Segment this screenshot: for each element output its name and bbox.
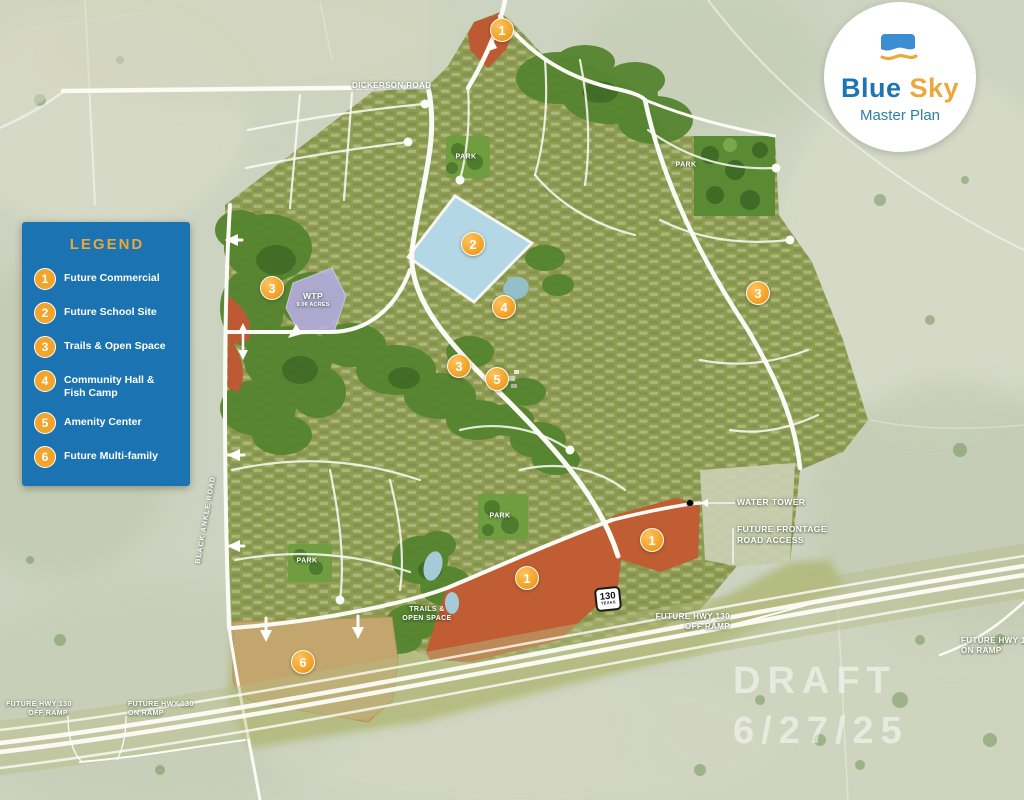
marker-2-school: 2 bbox=[461, 232, 485, 256]
marker-3-east: 3 bbox=[746, 281, 770, 305]
legend-label-1: Future Commercial bbox=[64, 268, 160, 285]
marker-3-central: 3 bbox=[447, 354, 471, 378]
hwy-off-ramp-label-right: FUTURE HWY 130 OFF RAMP bbox=[640, 612, 730, 633]
logo-brand-name: Blue Sky bbox=[841, 73, 959, 104]
legend-item-trails-open-space: 3 Trails & Open Space bbox=[34, 336, 180, 358]
blue-sky-logo: Blue Sky Master Plan bbox=[824, 2, 976, 152]
legend-num-3: 3 bbox=[34, 336, 56, 358]
marker-1-commercial-east: 1 bbox=[640, 528, 664, 552]
legend-item-future-school: 2 Future School Site bbox=[34, 302, 180, 324]
logo-brand-gold: Sky bbox=[909, 73, 959, 103]
park-label-southwest: PARK bbox=[297, 556, 318, 565]
frontage-line1: FUTURE FRONTAGE bbox=[737, 524, 827, 535]
blue-sky-flag-icon bbox=[877, 31, 923, 71]
trails-line1: TRAILS & bbox=[402, 605, 451, 614]
marker-5-amenity-center: 5 bbox=[485, 367, 509, 391]
logo-subtitle: Master Plan bbox=[860, 107, 940, 124]
wtp-label: WTP 9.06 ACRES bbox=[296, 291, 329, 309]
legend-label-6: Future Multi-family bbox=[64, 446, 158, 463]
legend-num-5: 5 bbox=[34, 412, 56, 434]
marker-3-west: 3 bbox=[260, 276, 284, 300]
legend-item-future-commercial: 1 Future Commercial bbox=[34, 268, 180, 290]
wtp-acres: 9.06 ACRES bbox=[296, 302, 329, 309]
legend-num-2: 2 bbox=[34, 302, 56, 324]
park-label-south: PARK bbox=[490, 511, 511, 520]
water-tower-dot bbox=[687, 500, 694, 507]
park-label-north: PARK bbox=[456, 152, 477, 161]
legend-item-community-hall: 4 Community Hall & Fish Camp bbox=[34, 370, 180, 400]
shield-state: TEXAS bbox=[601, 601, 616, 607]
park-label-east: PARK bbox=[676, 160, 697, 169]
water-tower-label: WATER TOWER bbox=[737, 497, 805, 508]
trails-open-space-label: TRAILS & OPEN SPACE bbox=[402, 605, 451, 623]
off-ramp-text: OFF RAMP bbox=[640, 622, 730, 632]
master-plan-map: DICKERSON ROAD BLACK ANKLE ROAD PARK PAR… bbox=[0, 0, 1024, 800]
legend-title: LEGEND bbox=[34, 236, 180, 253]
hwy130-text: FUTURE HWY 130 bbox=[961, 636, 1024, 646]
legend-num-6: 6 bbox=[34, 446, 56, 468]
hwy130-text: FUTURE HWY 130 bbox=[6, 700, 68, 709]
draft-line1: DRAFT bbox=[733, 656, 909, 706]
wtp-title: WTP bbox=[296, 291, 329, 302]
legend-label-4: Community Hall & Fish Camp bbox=[64, 370, 162, 400]
legend-label-3: Trails & Open Space bbox=[64, 336, 166, 353]
legend-panel: LEGEND 1 Future Commercial 2 Future Scho… bbox=[22, 222, 190, 486]
legend-num-1: 1 bbox=[34, 268, 56, 290]
marker-6-multifamily: 6 bbox=[291, 650, 315, 674]
hwy-off-ramp-label-bottom-left: FUTURE HWY 130 OFF RAMP bbox=[6, 700, 68, 718]
road-label-dickerson: DICKERSON ROAD bbox=[352, 81, 431, 91]
legend-label-2: Future School Site bbox=[64, 302, 157, 319]
legend-num-4: 4 bbox=[34, 370, 56, 392]
draft-line2: 6/27/25 bbox=[733, 706, 909, 756]
off-ramp-text: OFF RAMP bbox=[6, 709, 68, 718]
trails-line2: OPEN SPACE bbox=[402, 614, 451, 623]
on-ramp-text: ON RAMP bbox=[128, 709, 194, 718]
hwy-on-ramp-label-far-right: FUTURE HWY 130 ON RAMP bbox=[961, 636, 1024, 657]
marker-1-commercial-south: 1 bbox=[515, 566, 539, 590]
on-ramp-text: ON RAMP bbox=[961, 646, 1024, 656]
hwy130-text: FUTURE HWY 130 bbox=[128, 700, 194, 709]
marker-1-north: 1 bbox=[490, 18, 514, 42]
marker-4-community-hall: 4 bbox=[492, 295, 516, 319]
logo-brand-blue: Blue bbox=[841, 73, 902, 103]
hwy130-text: FUTURE HWY 130 bbox=[640, 612, 730, 622]
draft-watermark: DRAFT 6/27/25 bbox=[733, 656, 909, 756]
frontage-line2: ROAD ACCESS bbox=[737, 535, 827, 546]
hwy-on-ramp-label-bottom-left: FUTURE HWY 130 ON RAMP bbox=[128, 700, 194, 718]
field-water-tower bbox=[700, 463, 795, 566]
legend-item-future-multifamily: 6 Future Multi-family bbox=[34, 446, 180, 468]
legend-item-amenity-center: 5 Amenity Center bbox=[34, 412, 180, 434]
frontage-access-label: FUTURE FRONTAGE ROAD ACCESS bbox=[737, 524, 827, 546]
highway-130-shield: 130 TEXAS bbox=[594, 586, 622, 613]
legend-label-5: Amenity Center bbox=[64, 412, 142, 429]
